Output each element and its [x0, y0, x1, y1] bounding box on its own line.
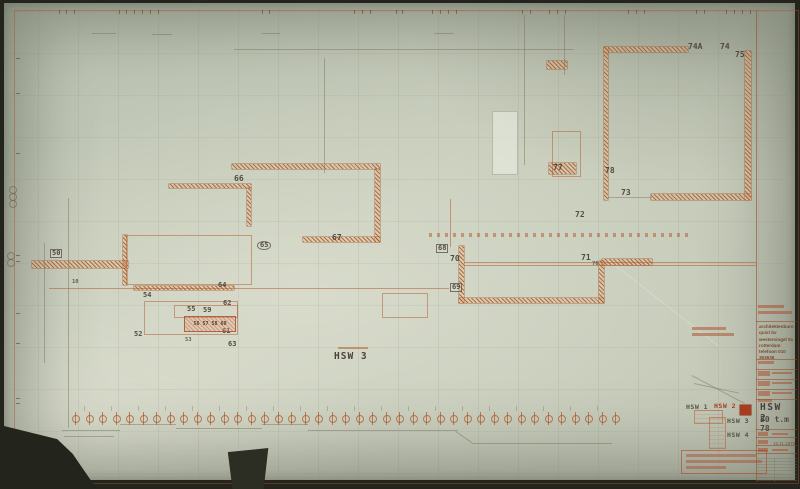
window-mullion-mark — [653, 233, 656, 237]
window-mullion-mark — [565, 233, 568, 237]
column-symbol — [504, 415, 512, 423]
pencil-tick — [300, 406, 301, 411]
column-symbol — [545, 415, 553, 423]
grid-tick-top — [134, 10, 135, 14]
legend-hsw1-label: HSW 1 — [686, 403, 708, 411]
column-symbol — [180, 415, 188, 423]
grid-tick-top — [66, 10, 67, 14]
window-mullion-mark — [477, 233, 480, 237]
room-number-label: 75 — [735, 51, 745, 59]
grid-tick-top — [396, 10, 397, 14]
grid-tick-left — [16, 153, 20, 154]
window-mullion-mark — [549, 233, 552, 237]
pencil-tick — [111, 406, 112, 411]
keymap-wing2-filled-shape — [740, 405, 751, 415]
window-mullion-mark — [525, 233, 528, 237]
titleblock-divider — [756, 437, 797, 438]
grid-tick-left — [16, 255, 20, 256]
legend-hsw3-label: HSW 3 — [727, 417, 749, 425]
window-mullion-mark — [453, 233, 456, 237]
grid-tick-top — [636, 10, 637, 14]
window-mullion-mark — [573, 233, 576, 237]
pencil-tick — [354, 406, 355, 411]
window-mullion-mark — [533, 233, 536, 237]
grid-tick-top — [354, 10, 355, 14]
room-number-label: 74 — [720, 43, 730, 51]
pencil-line — [68, 198, 69, 428]
column-symbol — [599, 415, 607, 423]
room-group-numbers: 56 57 58 60 — [193, 321, 226, 327]
pencil-tick — [543, 406, 544, 411]
room-number-label: 62 — [223, 300, 231, 307]
column-symbol — [153, 415, 161, 423]
window-mullion-mark — [581, 233, 584, 237]
pencil-line — [434, 33, 454, 34]
legend-hsw4-label: HSW 4 — [727, 431, 749, 439]
column-symbol — [261, 415, 269, 423]
room-number-label: 53 — [185, 338, 192, 344]
column-symbol — [113, 415, 121, 423]
column-symbol — [531, 415, 539, 423]
wall-segment — [745, 51, 751, 200]
column-symbol — [356, 415, 364, 423]
drawing-sheet: 5010525453555961626364656667686970717672… — [4, 3, 795, 480]
column-symbol — [288, 415, 296, 423]
column-symbol — [423, 415, 431, 423]
window-mullion-mark — [493, 233, 496, 237]
pencil-line — [64, 436, 114, 437]
stamp-text-line — [686, 460, 762, 463]
window-mullion-mark — [461, 233, 464, 237]
revision-rule — [757, 480, 797, 481]
window-mullion-mark — [541, 233, 544, 237]
column-symbol — [99, 415, 107, 423]
grid-tick-top — [750, 10, 751, 14]
room-number-label: 54 — [143, 292, 151, 299]
wall-segment — [604, 47, 688, 52]
pencil-tick — [597, 406, 598, 411]
column-symbol — [342, 415, 350, 423]
pencil-tick — [327, 406, 328, 411]
grid-tick-top — [696, 10, 697, 14]
room-number-label: 71 — [581, 254, 591, 262]
drawing-number-range: 50 t.m 78 — [760, 415, 795, 433]
grid-tick-top — [726, 10, 727, 14]
ink-line — [464, 265, 756, 266]
shaft-outline — [492, 111, 518, 175]
red-annotation — [772, 392, 792, 394]
revision-rule-divider — [774, 458, 775, 482]
grid-tick-top — [432, 10, 433, 14]
red-annotation — [772, 433, 788, 435]
window-mullion-mark — [605, 233, 608, 237]
column-symbol — [450, 415, 458, 423]
column-symbol — [369, 415, 377, 423]
grid-tick-top — [549, 10, 550, 14]
room-number-label: 52 — [134, 331, 142, 338]
room-number-label: 64 — [218, 282, 226, 289]
highlighted-room-block: 56 57 58 60 — [184, 316, 236, 332]
wall-segment — [375, 169, 380, 242]
grid-tick-top — [644, 10, 645, 14]
column-symbol — [315, 415, 323, 423]
grid-tick-left — [16, 313, 20, 314]
red-annotation — [758, 371, 770, 376]
pencil-tick — [435, 406, 436, 411]
column-symbol — [248, 415, 256, 423]
grid-tick-top — [158, 10, 159, 14]
pencil-line — [324, 58, 325, 173]
red-annotation — [772, 372, 792, 374]
red-annotation — [772, 382, 792, 384]
blueprint-photo: 5010525453555961626364656667686970717672… — [0, 0, 800, 489]
room-number-label: 63 — [228, 341, 236, 348]
ink-line — [450, 199, 451, 247]
column-symbol — [383, 415, 391, 423]
column-symbol — [491, 415, 499, 423]
red-annotation — [758, 381, 770, 386]
wall-segment — [247, 188, 251, 226]
titleblock-divider — [756, 399, 797, 400]
approval-stamp — [681, 450, 767, 474]
grid-tick-top — [362, 10, 363, 14]
grid-tick-top — [126, 10, 127, 14]
grid-tick-top — [734, 10, 735, 14]
room-number-label: 50 — [50, 249, 62, 258]
ink-line — [464, 262, 756, 263]
wall-segment — [232, 164, 380, 169]
pencil-tick — [408, 406, 409, 411]
grid-tick-top — [402, 10, 403, 14]
pencil-tick — [138, 406, 139, 411]
pencil-tick — [84, 406, 85, 411]
pencil-line — [262, 33, 280, 34]
window-mullion-mark — [661, 233, 664, 237]
margin-marker — [7, 259, 15, 267]
titleblock-divider — [756, 369, 797, 370]
window-mullion-mark — [677, 233, 680, 237]
grid-tick-top — [262, 10, 263, 14]
red-annotation — [758, 391, 770, 396]
room-number-label: 69 — [450, 283, 462, 292]
column-symbol — [558, 415, 566, 423]
pencil-tick — [381, 406, 382, 411]
window-mullion-mark — [517, 233, 520, 237]
window-mullion-mark — [637, 233, 640, 237]
ink-line — [338, 347, 368, 349]
room-number-label: 72 — [575, 211, 585, 219]
titleblock-divider — [756, 321, 797, 322]
grid-tick-top — [704, 10, 705, 14]
window-mullion-mark — [621, 233, 624, 237]
wall-segment — [651, 194, 751, 200]
grid-tick-top — [142, 10, 143, 14]
grid-tick-left — [16, 398, 20, 399]
pencil-tick — [192, 406, 193, 411]
margin-marker — [9, 200, 17, 208]
window-mullion-mark — [645, 233, 648, 237]
stamp-text-line — [686, 466, 726, 469]
window-mullion-mark — [501, 233, 504, 237]
column-symbol — [437, 415, 445, 423]
wall-segment — [459, 298, 604, 303]
room-number-label: 78 — [605, 167, 615, 175]
column-symbol — [396, 415, 404, 423]
room-number-label: 10 — [72, 280, 79, 286]
pencil-tick — [570, 406, 571, 411]
window-mullion-mark — [669, 233, 672, 237]
titleblock-divider — [756, 379, 797, 380]
column-symbol — [126, 415, 134, 423]
room-outline — [126, 235, 252, 285]
grid-tick-top — [742, 10, 743, 14]
grid-tick-top — [448, 10, 449, 14]
column-symbol — [410, 415, 418, 423]
pencil-line — [152, 34, 172, 35]
stamp-text-line — [686, 454, 756, 457]
grid-tick-top — [119, 10, 120, 14]
column-symbol — [86, 415, 94, 423]
column-symbol — [302, 415, 310, 423]
pencil-tick — [165, 406, 166, 411]
wall-segment — [599, 261, 604, 303]
room-number-label: 76 — [592, 262, 599, 268]
wall-segment — [169, 184, 251, 188]
window-mullion-mark — [445, 233, 448, 237]
pencil-line — [234, 49, 574, 50]
red-annotation — [758, 305, 784, 308]
column-symbol — [194, 415, 202, 423]
grid-tick-left — [16, 343, 20, 344]
keymap-wing3-shape — [709, 417, 726, 449]
pencil-tick — [273, 406, 274, 411]
window-mullion-mark — [485, 233, 488, 237]
grid-tick-top — [440, 10, 441, 14]
window-mullion-mark — [613, 233, 616, 237]
red-annotation — [692, 333, 734, 336]
room-number-label: 77 — [553, 164, 563, 172]
grid-tick-top — [59, 10, 60, 14]
grid-tick-top — [456, 10, 457, 14]
window-mullion-mark — [589, 233, 592, 237]
architect-info-line: telefoon 010 363636 — [759, 349, 796, 362]
titleblock-left-edge — [756, 10, 757, 482]
pencil-line — [308, 430, 458, 431]
room-number-label: 55 — [187, 306, 195, 313]
pencil-tick — [246, 406, 247, 411]
column-symbol — [612, 415, 620, 423]
window-mullion-mark — [469, 233, 472, 237]
grid-tick-left — [16, 58, 20, 59]
grid-tick-top — [269, 10, 270, 14]
column-symbol — [167, 415, 175, 423]
grid-tick-top — [522, 10, 523, 14]
column-symbol — [477, 415, 485, 423]
ink-line — [49, 288, 449, 289]
room-number-label: 74A — [688, 43, 702, 51]
column-symbol — [518, 415, 526, 423]
column-symbol — [329, 415, 337, 423]
architect-info-line: westersingel 51 — [759, 337, 796, 343]
window-mullion-mark — [429, 233, 432, 237]
window-mullion-mark — [509, 233, 512, 237]
grid-tick-top — [565, 10, 566, 14]
pencil-line — [524, 15, 525, 165]
grid-tick-top — [74, 10, 75, 14]
pencil-line — [472, 443, 612, 444]
architect-info: architektenburoquist bvwestersingel 51ro… — [759, 324, 796, 362]
room-number-label: 59 — [203, 307, 211, 314]
grid-tick-top — [150, 10, 151, 14]
room-number-label: 67 — [332, 234, 342, 242]
column-symbol — [207, 415, 215, 423]
window-mullion-mark — [597, 233, 600, 237]
pencil-line — [92, 33, 116, 34]
pencil-line — [44, 243, 45, 363]
room-outline — [382, 293, 428, 318]
column-symbol — [221, 415, 229, 423]
column-symbol — [585, 415, 593, 423]
grid-tick-left — [16, 93, 20, 94]
window-mullion-mark — [685, 233, 688, 237]
wing-caption: HSW 3 — [334, 351, 368, 362]
pencil-line — [62, 430, 120, 431]
red-annotation — [692, 327, 726, 330]
column-symbol — [234, 415, 242, 423]
pencil-line — [176, 428, 262, 429]
room-number-label: 70 — [450, 255, 460, 263]
window-mullion-mark — [629, 233, 632, 237]
grid-tick-left — [16, 261, 20, 262]
red-annotation — [772, 449, 788, 451]
wall-segment — [604, 47, 608, 200]
column-symbol — [572, 415, 580, 423]
grid-tick-top — [530, 10, 531, 14]
window-mullion-mark — [557, 233, 560, 237]
grid-tick-top — [557, 10, 558, 14]
room-number-label: 66 — [234, 175, 244, 183]
pencil-tick — [516, 406, 517, 411]
titleblock-divider — [756, 389, 797, 390]
column-symbol — [140, 415, 148, 423]
pencil-tick — [489, 406, 490, 411]
column-symbol — [72, 415, 80, 423]
date-note: 15.11.1975 — [773, 441, 795, 446]
grid-tick-left — [16, 403, 20, 404]
wall-segment — [32, 261, 128, 268]
red-annotation — [758, 311, 792, 314]
grid-tick-top — [370, 10, 371, 14]
pencil-line — [564, 15, 565, 75]
pencil-tick — [462, 406, 463, 411]
red-annotation — [758, 440, 768, 444]
column-symbol — [275, 415, 283, 423]
room-number-label: 68 — [436, 244, 448, 253]
revision-rule — [757, 477, 797, 478]
pencil-tick — [219, 406, 220, 411]
grid-tick-top — [628, 10, 629, 14]
room-number-label: 73 — [621, 189, 631, 197]
pencil-line — [608, 197, 652, 198]
pencil-line — [262, 424, 308, 425]
column-symbol — [464, 415, 472, 423]
window-mullion-mark — [437, 233, 440, 237]
legend-hsw2-label: HSW 2 — [714, 402, 736, 410]
